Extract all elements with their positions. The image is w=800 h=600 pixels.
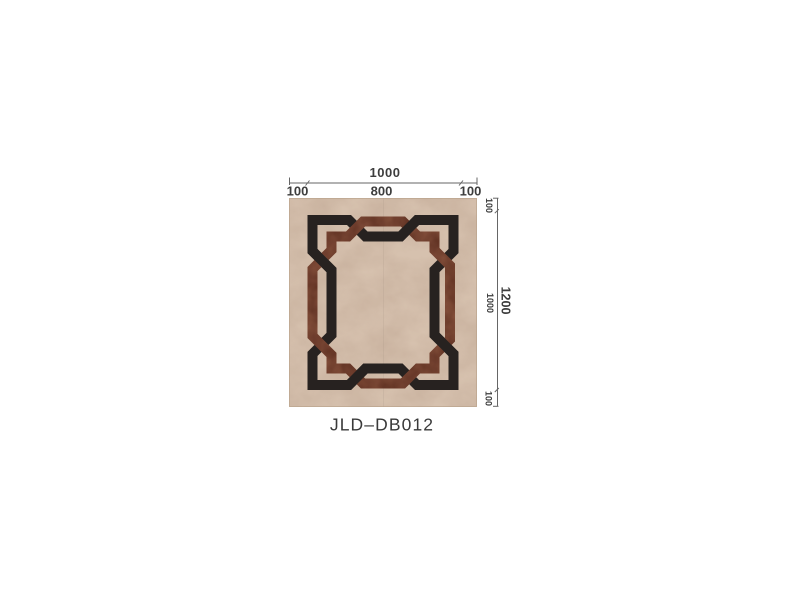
- svg-text:100: 100: [287, 184, 309, 199]
- svg-text:1200: 1200: [499, 287, 513, 315]
- svg-text:100: 100: [484, 391, 494, 406]
- svg-text:1000: 1000: [370, 165, 401, 180]
- svg-text:100: 100: [484, 198, 494, 213]
- svg-text:1000: 1000: [485, 293, 495, 313]
- svg-text:100: 100: [460, 184, 482, 199]
- svg-text:800: 800: [371, 184, 393, 199]
- svg-text:JLD–DB012: JLD–DB012: [330, 415, 434, 435]
